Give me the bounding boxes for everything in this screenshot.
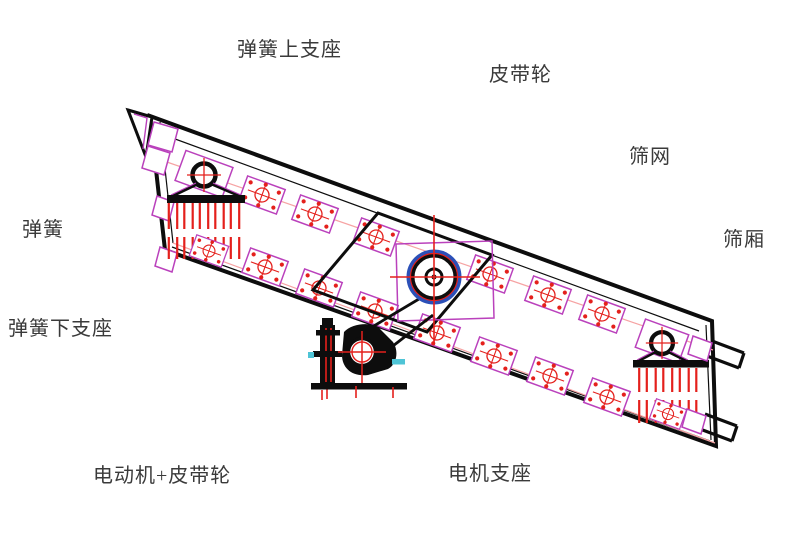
label-screen-mesh: 筛网 [629,146,671,168]
leader-belt-pulley [449,93,549,247]
label-spring: 弹簧 [22,219,64,241]
label-belt-pulley: 皮带轮 [489,64,552,86]
label-screen-box: 筛厢 [723,229,765,251]
label-spring-upper-support: 弹簧上支座 [237,39,342,61]
diagram-canvas: 弹簧上支座 皮带轮 筛网 弹簧 筛厢 弹簧下支座 电动机+皮带轮 电机支座 [0,0,800,535]
label-motor-belt-pulley: 电动机+皮带轮 [93,465,231,487]
label-motor-support: 电机支座 [448,463,532,485]
label-spring-lower-support: 弹簧下支座 [8,318,113,340]
leader-spring-upper-support [226,65,334,160]
vibrating-screen-drawing [0,0,800,535]
